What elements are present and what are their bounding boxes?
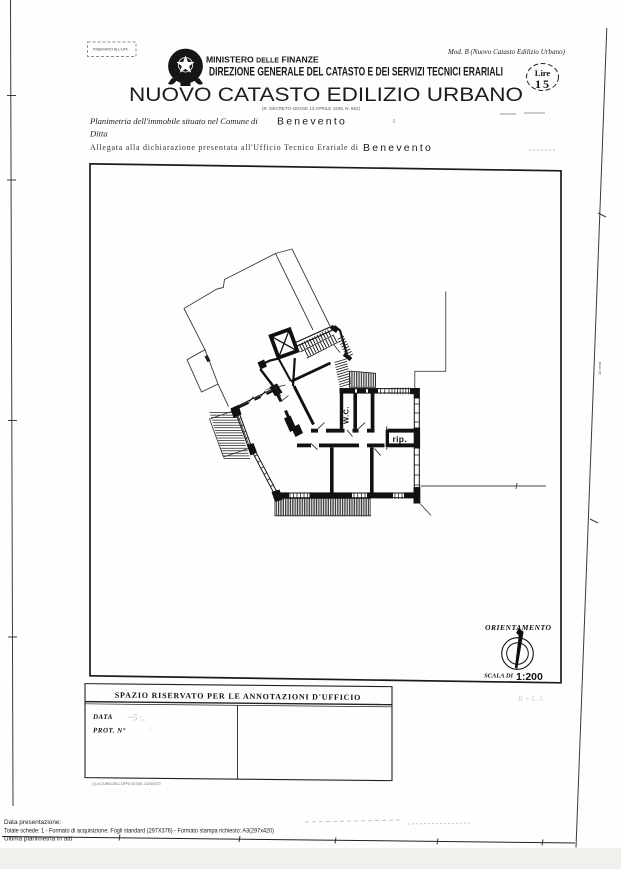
svg-text:Ditta: Ditta xyxy=(89,129,108,139)
svg-text:Totale schede: 1 - Formato di: Totale schede: 1 - Formato di acquisizio… xyxy=(4,828,274,835)
svg-text:,··: ,·· xyxy=(148,724,153,732)
svg-text:W.C.: W.C. xyxy=(342,406,351,424)
svg-text:Benevento: Benevento xyxy=(277,116,347,128)
svg-text:Allegata alla dichiarazione pr: Allegata alla dichiarazione presentata a… xyxy=(90,143,359,152)
svg-text:Benevento: Benevento xyxy=(363,142,433,154)
svg-text:RISERVATO ALL'UFF.: RISERVATO ALL'UFF. xyxy=(93,48,129,52)
svg-text:DIREZIONE GENERALE DEL CATASTO: DIREZIONE GENERALE DEL CATASTO E DEI SER… xyxy=(209,67,503,79)
svg-text:Data presentazione:: Data presentazione: xyxy=(4,819,61,826)
svg-text:NUOVO CATASTO EDILIZIO URBANO: NUOVO CATASTO EDILIZIO URBANO xyxy=(129,85,523,106)
svg-text:PROT. N°: PROT. N° xyxy=(93,726,126,734)
svg-text:15: 15 xyxy=(535,77,551,91)
svg-text:DATA: DATA xyxy=(92,713,113,721)
svg-text:Planimetria dell'immobile situ: Planimetria dell'immobile situato nel Co… xyxy=(89,116,258,126)
svg-text:SCALA DI: SCALA DI xyxy=(484,673,514,680)
svg-text:(1) A CURA DELL'UFFICIO DEL CA: (1) A CURA DELL'UFFICIO DEL CATASTO xyxy=(92,782,161,786)
svg-text:rip.: rip. xyxy=(393,434,407,444)
svg-text:10 cent: 10 cent xyxy=(597,361,602,375)
svg-text:Mod. B (Nuovo Catasto Edilizio: Mod. B (Nuovo Catasto Edilizio Urbano) xyxy=(447,48,566,56)
svg-text:I: I xyxy=(393,119,395,125)
svg-text:(R. DECRETO-LEGGE 13 APRILE 19: (R. DECRETO-LEGGE 13 APRILE 1939, N. 652… xyxy=(262,106,360,111)
svg-text:B + L. 5: B + L. 5 xyxy=(518,694,543,703)
svg-text:1:200: 1:200 xyxy=(516,671,543,683)
svg-text:~5 :..: ~5 :.. xyxy=(128,712,147,722)
